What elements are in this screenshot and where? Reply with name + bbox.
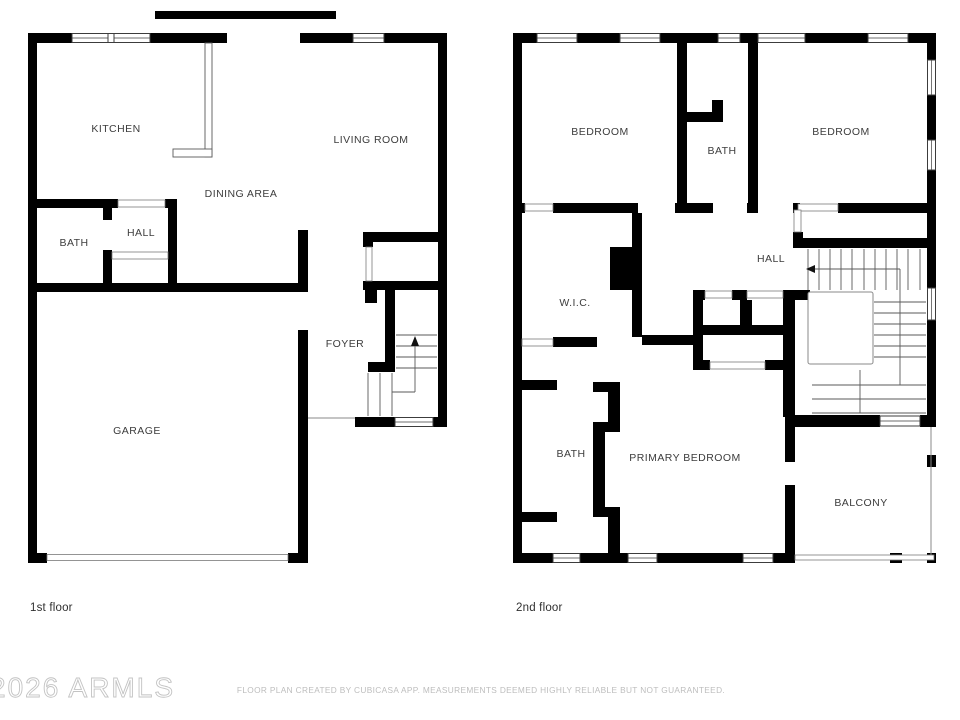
room-label-foyer: FOYER — [326, 338, 364, 350]
room-label-kitchen: KITCHEN — [91, 123, 140, 135]
stairs-down-arrow — [806, 265, 815, 273]
floor-caption-1st: 1st floor — [30, 602, 73, 614]
balcony-railing — [795, 427, 934, 560]
room-label-wic: W.I.C. — [559, 297, 590, 309]
room-label-hall-1st: HALL — [127, 227, 155, 239]
armls-watermark: 2026 ARMLS — [0, 672, 175, 703]
room-label-primary-bedroom: PRIMARY BEDROOM — [629, 452, 740, 464]
garage-door — [47, 555, 288, 561]
kitchen-counter — [173, 43, 212, 157]
room-label-dining-area: DINING AREA — [205, 188, 278, 200]
room-label-garage: GARAGE — [113, 425, 161, 437]
stairwell-void — [808, 292, 873, 364]
room-label-bath-upper: BATH — [707, 145, 736, 157]
disclaimer-text: FLOOR PLAN CREATED BY CUBICASA APP. MEAS… — [237, 685, 725, 695]
second-floor-stairs — [806, 249, 926, 413]
floor-plan-canvas: KITCHEN LIVING ROOM DINING AREA BATH HAL… — [0, 0, 960, 720]
room-label-bedroom-left: BEDROOM — [571, 126, 628, 138]
room-label-living-room: LIVING ROOM — [334, 134, 409, 146]
room-label-balcony: BALCONY — [834, 497, 887, 509]
first-floor-openings — [47, 200, 372, 561]
second-floor-plan: BEDROOM BATH BEDROOM HALL W.I.C. BATH PR… — [513, 33, 936, 563]
room-label-hall-2nd: HALL — [757, 253, 785, 265]
floor-caption-2nd: 2nd floor — [516, 602, 563, 614]
stairs-up-arrow — [411, 336, 419, 346]
first-floor-stairs — [368, 335, 437, 416]
first-floor-walls — [28, 11, 447, 563]
floor-plan-page: KITCHEN LIVING ROOM DINING AREA BATH HAL… — [0, 0, 960, 720]
room-label-bath-lower: BATH — [556, 448, 585, 460]
room-label-bedroom-right: BEDROOM — [812, 126, 869, 138]
room-label-bath-1st: BATH — [59, 237, 88, 249]
first-floor-plan: KITCHEN LIVING ROOM DINING AREA BATH HAL… — [28, 11, 447, 563]
